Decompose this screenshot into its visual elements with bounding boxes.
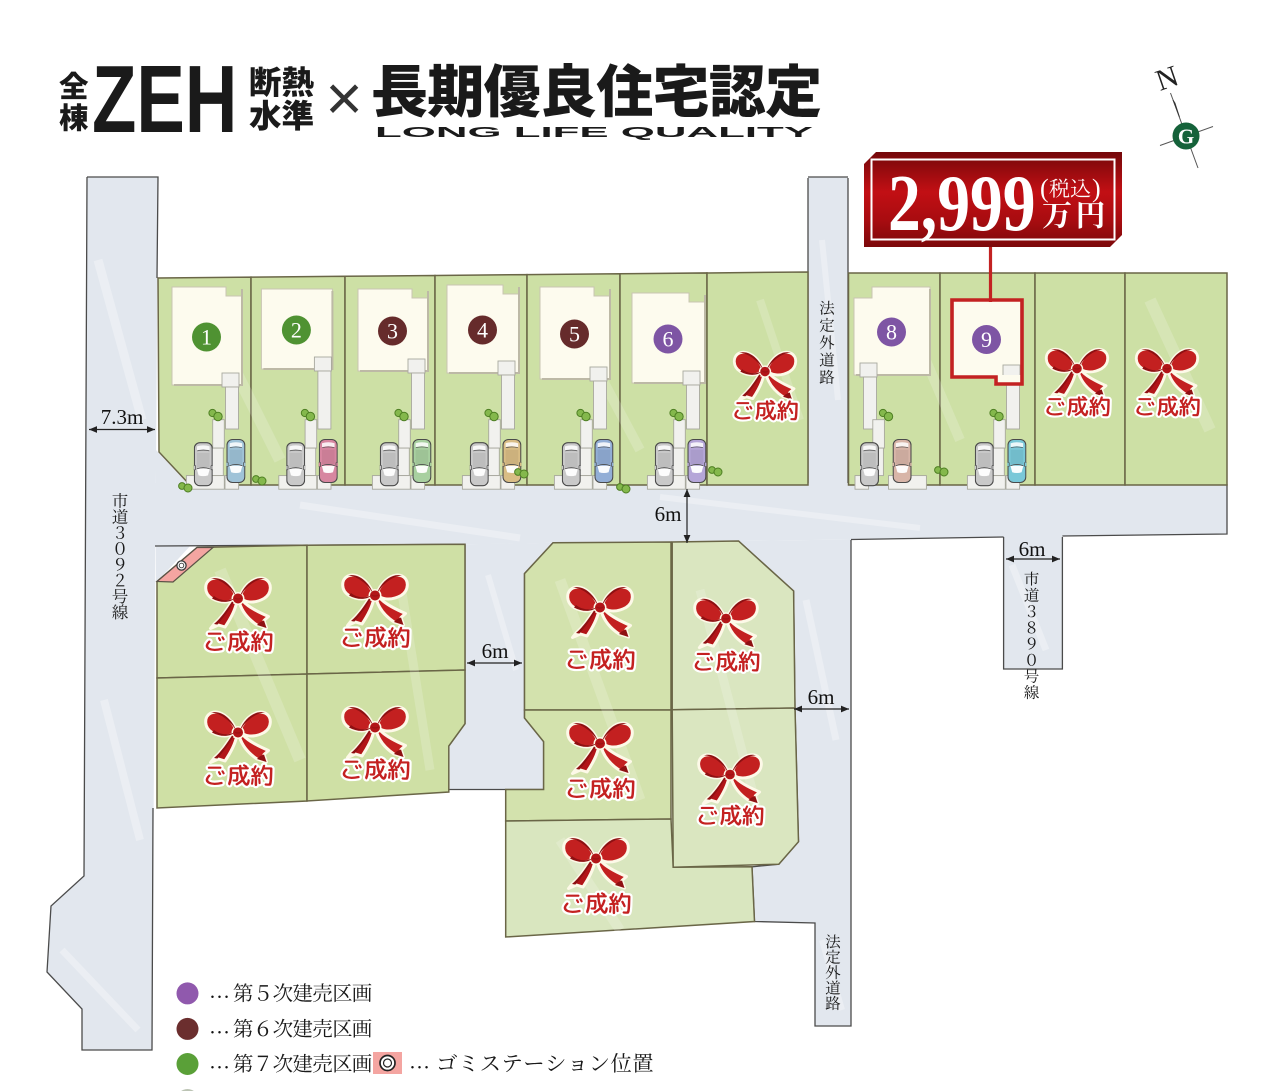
svg-text:3: 3 [387,319,398,344]
svg-text:×: × [325,62,362,134]
svg-text:7.3m: 7.3m [101,405,144,429]
svg-text:2,999: 2,999 [888,159,1036,248]
svg-text:G: G [1178,125,1194,149]
svg-text:9: 9 [981,327,992,352]
svg-text:4: 4 [477,318,488,343]
svg-text:): ) [1092,174,1101,203]
svg-text:6m: 6m [482,639,509,663]
svg-text:LONG LIFE QUALITY: LONG LIFE QUALITY [375,124,813,141]
svg-text:5: 5 [569,322,580,347]
svg-text:…: … [209,979,230,1003]
svg-text:6m: 6m [808,685,835,709]
svg-text:ZEH: ZEH [92,46,237,153]
svg-text:(: ( [1040,174,1049,203]
svg-text:…: … [209,1050,230,1074]
svg-text:6: 6 [663,327,674,352]
svg-text:2: 2 [291,318,302,343]
svg-text:…: … [209,1015,230,1039]
svg-text:…: … [409,1050,430,1074]
svg-text:8: 8 [886,320,897,345]
svg-text:6m: 6m [655,502,682,526]
svg-text:6m: 6m [1019,537,1046,561]
svg-text:1: 1 [201,325,212,350]
